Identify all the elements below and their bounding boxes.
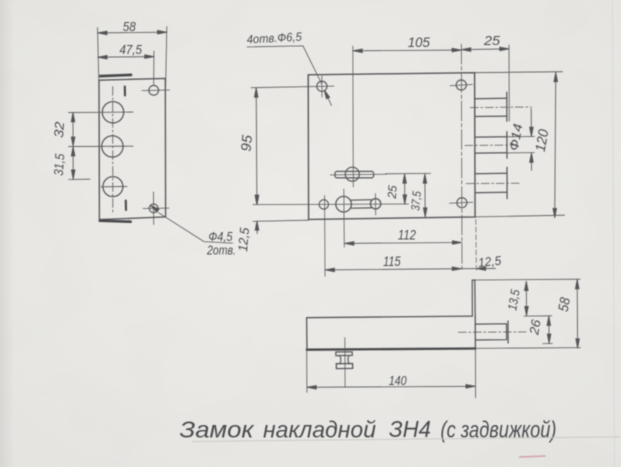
svg-text:Замок: Замок — [180, 417, 255, 443]
svg-text:105: 105 — [408, 35, 430, 50]
svg-text:накладной: накладной — [263, 417, 376, 443]
svg-text:Ф4,5: Ф4,5 — [209, 229, 234, 244]
svg-text:25: 25 — [483, 33, 501, 48]
svg-text:95: 95 — [238, 134, 255, 152]
svg-text:4отв.Ф6,5: 4отв.Ф6,5 — [246, 30, 302, 47]
svg-text:25: 25 — [385, 185, 400, 200]
svg-text:12,5: 12,5 — [235, 226, 252, 252]
svg-text:58: 58 — [555, 296, 573, 313]
svg-text:115: 115 — [383, 254, 401, 269]
svg-text:ЗН4: ЗН4 — [389, 416, 431, 442]
svg-text:12,5: 12,5 — [478, 254, 502, 270]
svg-text:37,5: 37,5 — [408, 190, 424, 211]
svg-text:112: 112 — [398, 228, 416, 243]
svg-text:58: 58 — [123, 19, 137, 34]
svg-text:2отв.: 2отв. — [206, 244, 236, 258]
svg-text:32: 32 — [51, 120, 67, 138]
svg-text:31,5: 31,5 — [51, 153, 68, 177]
svg-text:47,5: 47,5 — [119, 43, 142, 57]
svg-text:140: 140 — [389, 373, 408, 388]
